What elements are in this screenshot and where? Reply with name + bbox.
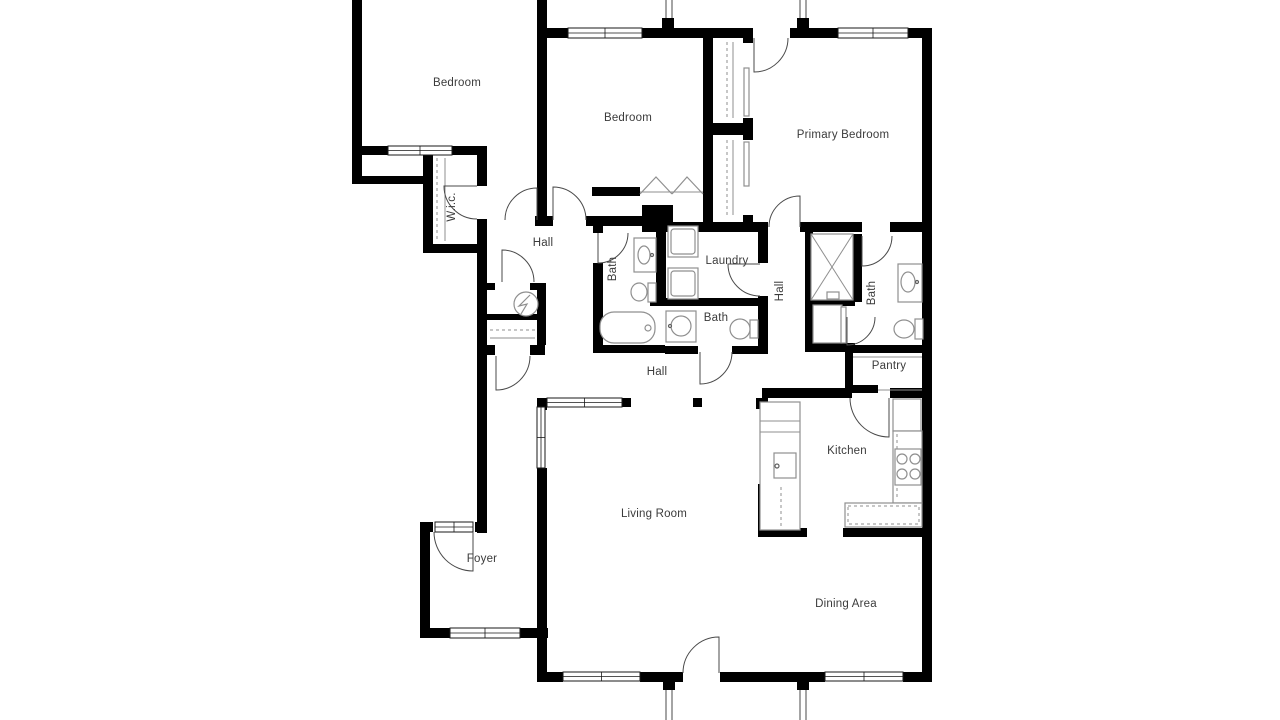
room-label-hall-main: Hall — [647, 366, 668, 378]
linen-door-panel — [841, 307, 846, 343]
room-label-dining-area: Dining Area — [815, 598, 877, 610]
wall — [853, 234, 862, 302]
primary-bath-sink — [901, 272, 915, 292]
wall — [713, 123, 743, 135]
wall — [477, 345, 495, 355]
wall — [758, 232, 768, 263]
wall — [535, 216, 553, 226]
wall — [720, 672, 825, 682]
wall — [423, 155, 433, 253]
washer-inner — [671, 229, 695, 254]
room-label-pantry: Pantry — [872, 360, 906, 372]
room-label-bath-hall: Bath — [607, 257, 619, 281]
room-label-laundry: Laundry — [706, 255, 749, 267]
wall — [797, 680, 809, 690]
fridge — [893, 399, 921, 431]
wall — [743, 118, 753, 140]
wall — [663, 680, 675, 690]
room-label-living-room: Living Room — [621, 508, 687, 520]
wall — [665, 346, 698, 354]
wall — [642, 28, 752, 38]
floor-background — [0, 0, 1280, 720]
wall — [622, 398, 631, 407]
hall-bath-faucet — [651, 254, 654, 257]
bath2-toilet-bowl — [730, 319, 750, 339]
bath2-toilet-tank — [750, 320, 758, 338]
stove-burner-2 — [910, 454, 920, 464]
wall — [592, 187, 640, 196]
room-label-kitchen: Kitchen — [827, 445, 867, 457]
wall — [477, 219, 487, 533]
wall — [352, 0, 362, 184]
wall — [537, 672, 563, 682]
wall — [593, 263, 603, 352]
stove-burner-4 — [910, 469, 920, 479]
room-label-bath-primary: Bath — [866, 281, 878, 305]
room-label-wic: W.i.c. — [446, 192, 458, 221]
wall — [537, 283, 546, 345]
bath2-faucet — [669, 325, 672, 328]
wall — [420, 522, 430, 638]
room-label-bedroom-2: Bedroom — [604, 112, 652, 124]
room-label-bedroom-1: Bedroom — [433, 77, 481, 89]
wall — [662, 18, 674, 30]
wall — [352, 176, 430, 184]
room-label-primary-bedroom: Primary Bedroom — [797, 129, 889, 141]
wall — [743, 215, 753, 232]
wall — [352, 146, 388, 155]
wall — [693, 398, 702, 407]
hall-bath-toilet-bowl — [631, 283, 647, 301]
room-label-bath-2: Bath — [704, 312, 728, 324]
closet-slider-upper — [744, 68, 749, 116]
floorplan-drawing: BedroomBedroomPrimary BedroomW.i.c.HallB… — [0, 0, 1280, 720]
wall — [530, 345, 545, 355]
wall — [543, 28, 568, 38]
wall — [420, 628, 450, 638]
wall — [758, 296, 768, 352]
kitchen-counter-bottom — [845, 503, 922, 527]
closet-slider-lower — [744, 142, 749, 186]
room-label-foyer: Foyer — [467, 553, 497, 565]
primary-toilet-bowl — [894, 320, 914, 338]
bathtub-faucet — [645, 325, 651, 331]
stove-burner-1 — [897, 454, 907, 464]
dryer-inner — [671, 271, 695, 296]
wall — [732, 346, 768, 354]
stove-burner-3 — [897, 469, 907, 479]
wall — [762, 388, 852, 398]
wall — [475, 522, 487, 532]
wall — [890, 222, 932, 232]
wall — [593, 345, 665, 353]
wall — [487, 314, 545, 320]
room-label-hall-upper: Hall — [533, 237, 554, 249]
wall — [903, 672, 932, 682]
shower-head — [827, 292, 839, 299]
wall — [593, 225, 603, 233]
wall — [520, 628, 548, 638]
hall-bath-toilet-tank — [648, 283, 656, 302]
primary-toilet-tank — [915, 319, 923, 339]
wall — [843, 528, 932, 537]
wall — [743, 28, 753, 43]
wall — [656, 225, 666, 302]
primary-bath-faucet — [916, 281, 919, 284]
wall — [922, 28, 932, 682]
wall — [487, 283, 495, 290]
hall-bath-sink — [638, 246, 650, 264]
room-label-hall-bedroom: Hall — [774, 281, 786, 302]
wall — [797, 18, 809, 30]
bath2-sink — [671, 316, 691, 336]
island-faucet — [775, 464, 779, 468]
wall — [845, 345, 932, 353]
wall — [703, 28, 713, 225]
wall — [477, 146, 487, 186]
wall — [537, 468, 547, 682]
linen-closet — [813, 305, 842, 343]
wall — [640, 672, 683, 682]
floorplan-page: BedroomBedroomPrimary BedroomW.i.c.HallB… — [0, 0, 1280, 720]
